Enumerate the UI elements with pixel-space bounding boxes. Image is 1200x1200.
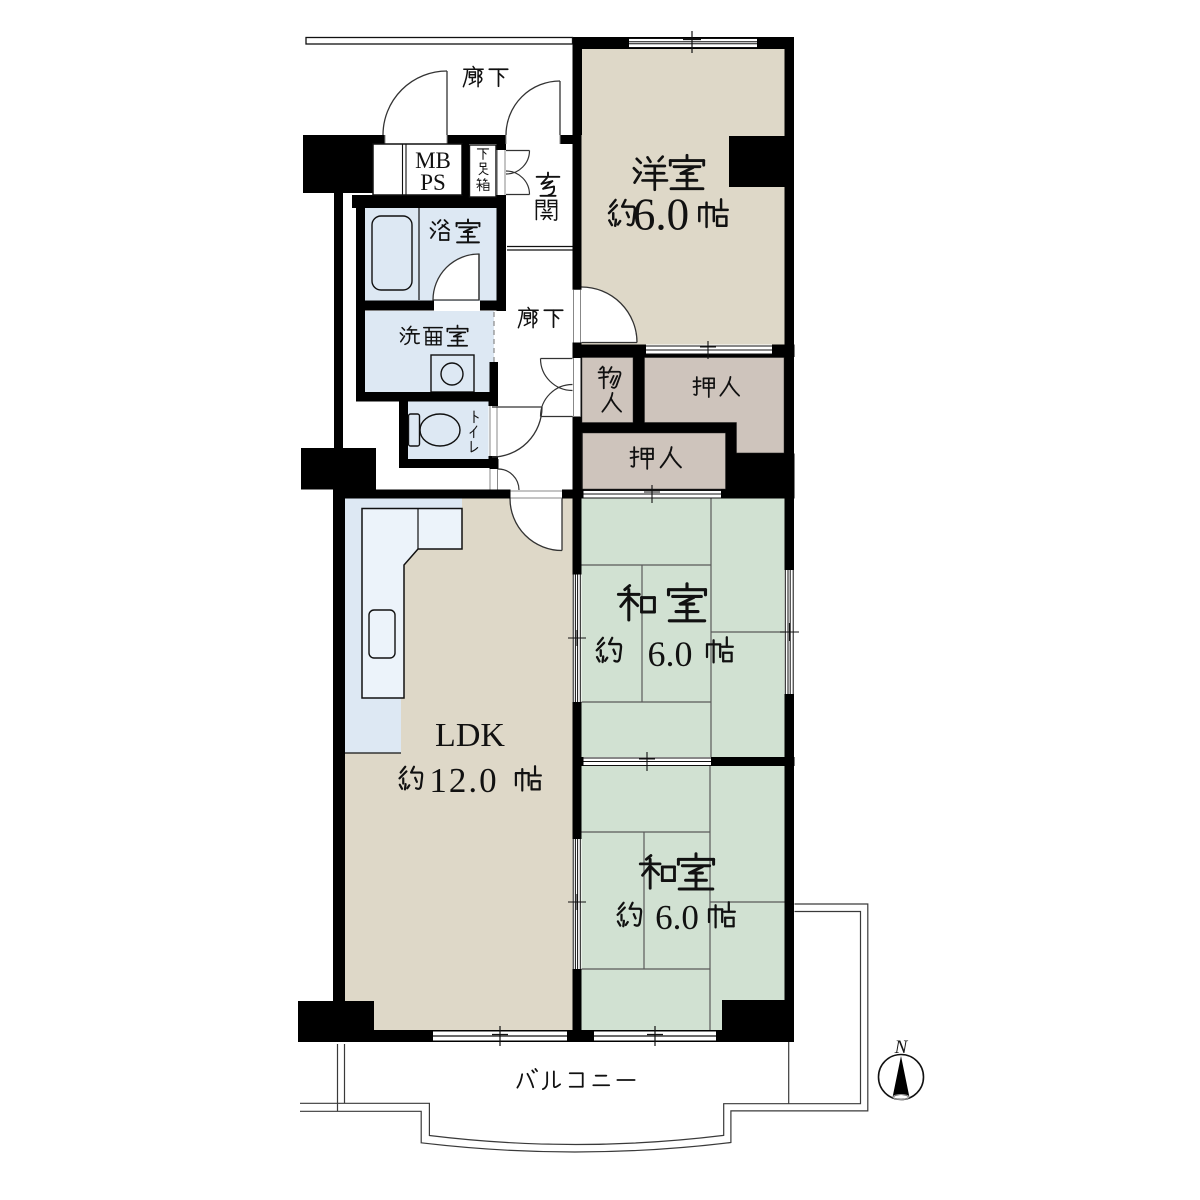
svg-text:6.0: 6.0: [655, 898, 699, 937]
svg-text:N: N: [894, 1037, 909, 1058]
svg-text:12.0: 12.0: [429, 761, 498, 800]
svg-text:6.0: 6.0: [648, 634, 693, 674]
svg-text:PS: PS: [420, 170, 446, 195]
svg-text:LDK: LDK: [435, 717, 505, 754]
svg-text:6.0: 6.0: [633, 190, 689, 240]
